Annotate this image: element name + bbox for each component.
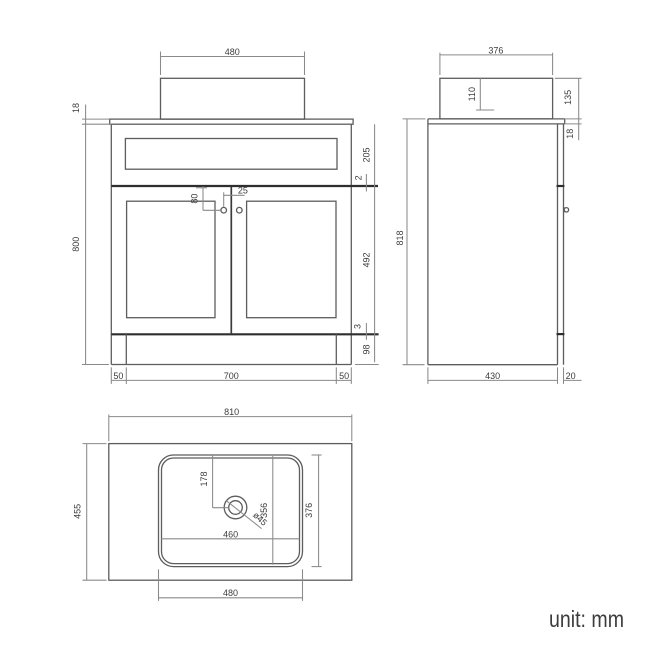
svg-text:178: 178 xyxy=(199,471,209,486)
svg-text:unit: mm: unit: mm xyxy=(549,606,624,632)
svg-text:492: 492 xyxy=(362,252,372,267)
svg-text:700: 700 xyxy=(224,371,239,381)
svg-text:25: 25 xyxy=(238,185,248,195)
svg-text:480: 480 xyxy=(223,588,238,598)
svg-text:110: 110 xyxy=(467,87,477,101)
svg-text:480: 480 xyxy=(225,47,240,57)
svg-text:818: 818 xyxy=(395,230,405,245)
svg-text:18: 18 xyxy=(71,103,81,113)
svg-text:135: 135 xyxy=(563,90,573,105)
svg-text:50: 50 xyxy=(339,371,349,381)
svg-text:98: 98 xyxy=(362,344,372,354)
svg-text:2: 2 xyxy=(353,175,363,180)
svg-text:3: 3 xyxy=(352,324,362,329)
svg-text:50: 50 xyxy=(113,371,123,381)
svg-text:80: 80 xyxy=(189,194,199,204)
svg-text:460: 460 xyxy=(223,529,238,539)
svg-text:376: 376 xyxy=(488,45,503,55)
svg-text:20: 20 xyxy=(566,371,576,381)
svg-text:205: 205 xyxy=(362,147,372,162)
svg-text:810: 810 xyxy=(224,407,239,417)
svg-text:800: 800 xyxy=(71,237,81,252)
svg-text:430: 430 xyxy=(485,371,500,381)
svg-text:376: 376 xyxy=(304,503,314,518)
svg-text:18: 18 xyxy=(565,129,575,139)
svg-text:455: 455 xyxy=(72,504,82,519)
